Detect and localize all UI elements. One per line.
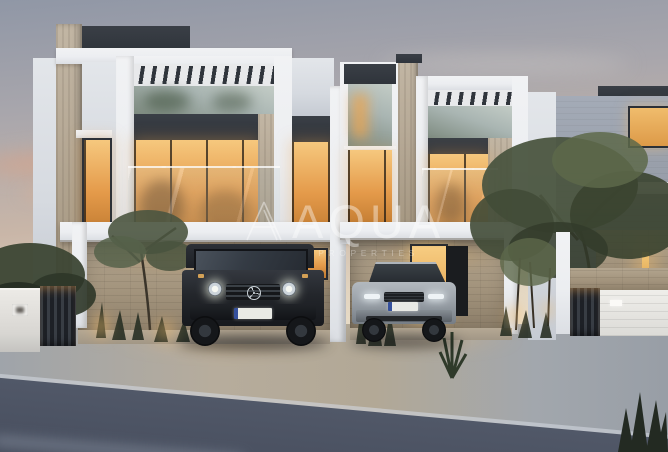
g-class-star-emblem [247,286,261,300]
range-rover-headlight-right [428,294,444,299]
g-class-indicator-left [198,274,204,278]
right-gate-post [556,232,570,334]
uplight-left-2 [150,314,180,346]
g-class-headlight-left [208,282,222,296]
watermark-subtitle: PROPERTIES [318,249,419,258]
right-white-garage-wall [600,290,668,336]
gate-keypad [610,300,622,306]
watermark: AQUA PROPERTIES [244,198,464,258]
range-rover-license-plate [388,302,418,311]
g-class-indicator-right [302,274,308,278]
g-class-headlight-right [282,282,296,296]
g-class-wheel-left [190,316,220,346]
grass-tuft-bottom-right [618,392,668,452]
left-boundary-wall [0,288,40,352]
house-number-marking [16,307,24,313]
range-rover-grille [384,292,424,302]
left-slatted-gate [40,286,76,346]
watermark-title: AQUA [292,198,445,245]
uplight-left-1 [88,308,114,344]
right-slatted-gate [570,288,600,336]
range-rover-suv [352,258,456,348]
range-rover-wheel-right [422,318,446,342]
mercedes-g-class-suv [182,244,324,350]
uplight-right-1 [502,300,526,332]
left-house-number-plaque [12,304,28,316]
dusk-villa-render: AQUA PROPERTIES [0,0,668,452]
range-rover-wheel-left [362,318,386,342]
range-rover-headlight-left [364,294,380,299]
aqua-logo-a-mark [244,200,284,242]
g-class-license-plate [234,308,272,319]
uplight-right-2 [538,296,558,324]
g-class-wheel-right [286,316,316,346]
